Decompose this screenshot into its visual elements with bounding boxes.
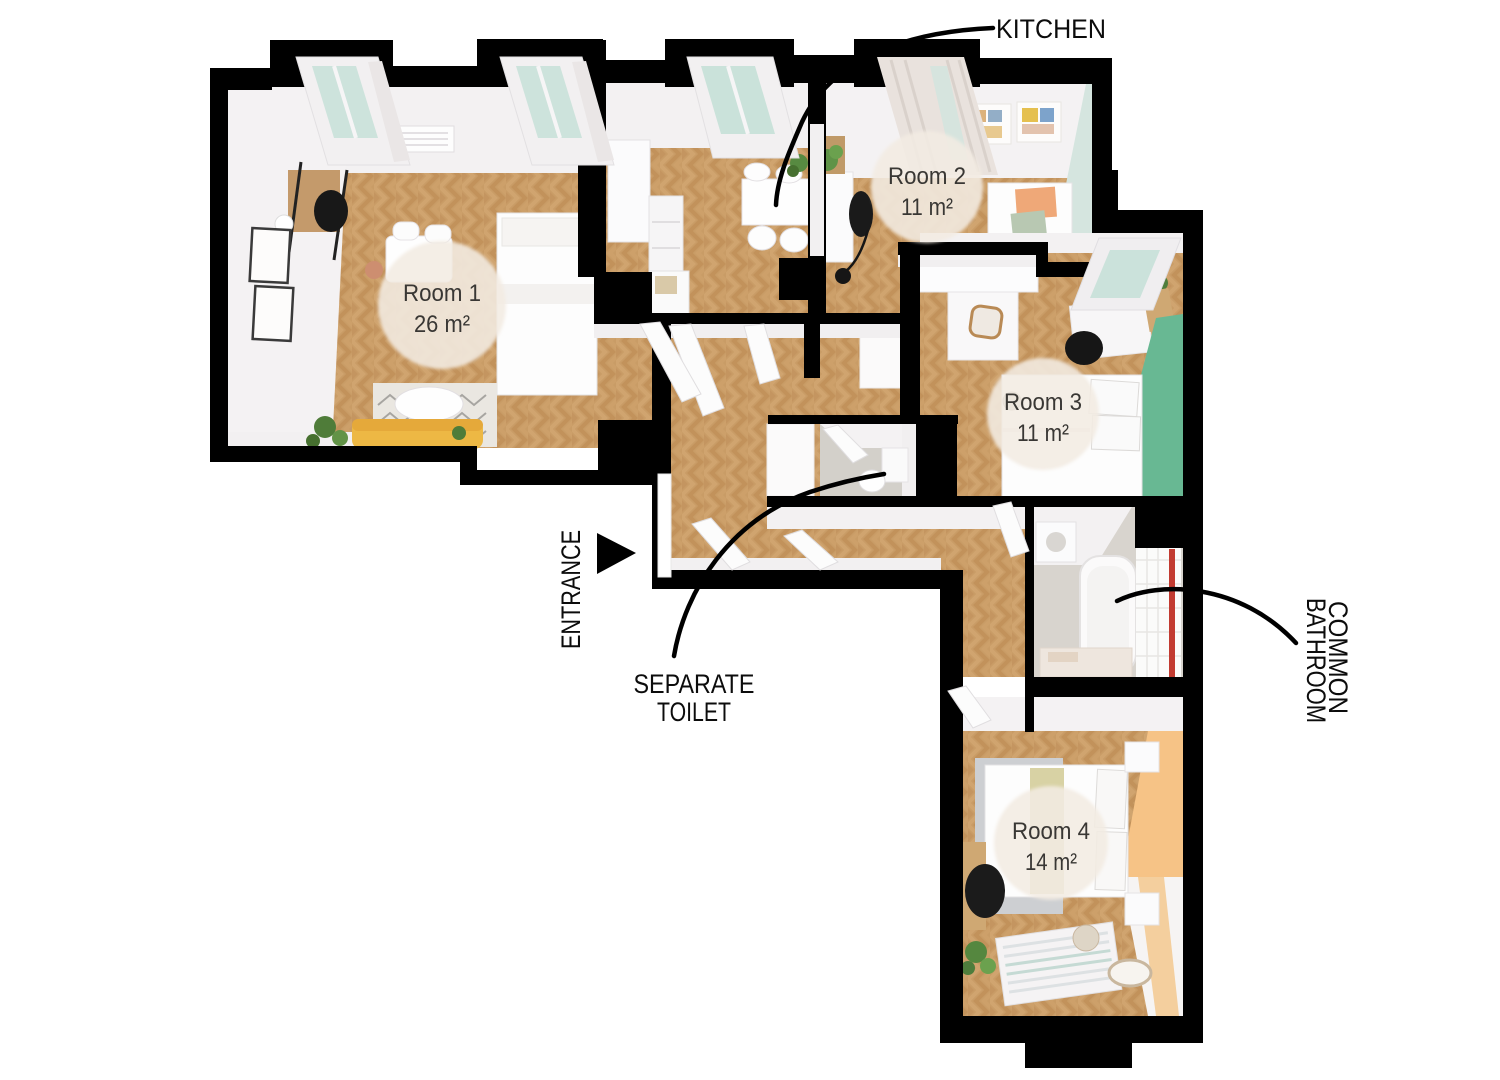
svg-text:11 m²: 11 m²: [1017, 420, 1069, 447]
svg-text:SEPARATE: SEPARATE: [634, 669, 755, 699]
svg-text:BATHROOM: BATHROOM: [1301, 598, 1331, 723]
svg-text:TOILET: TOILET: [657, 697, 731, 727]
svg-text:Room 4: Room 4: [1012, 818, 1090, 845]
svg-text:Room 2: Room 2: [888, 163, 966, 190]
svg-text:14 m²: 14 m²: [1025, 849, 1077, 876]
svg-text:Room 1: Room 1: [403, 280, 481, 307]
svg-text:26 m²: 26 m²: [414, 311, 470, 338]
svg-text:ENTRANCE: ENTRANCE: [556, 530, 586, 649]
svg-text:11 m²: 11 m²: [901, 194, 953, 221]
svg-text:KITCHEN: KITCHEN: [996, 14, 1106, 44]
svg-text:Room 3: Room 3: [1004, 389, 1082, 416]
